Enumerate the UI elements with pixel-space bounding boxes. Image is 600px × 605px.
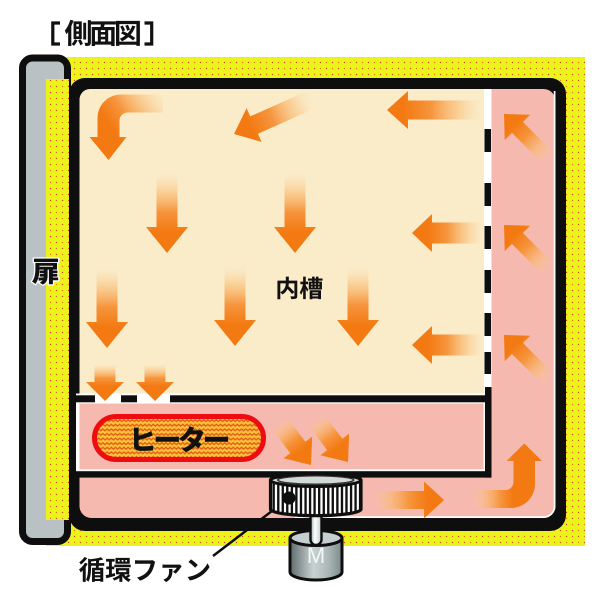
- svg-text:M: M: [307, 543, 325, 568]
